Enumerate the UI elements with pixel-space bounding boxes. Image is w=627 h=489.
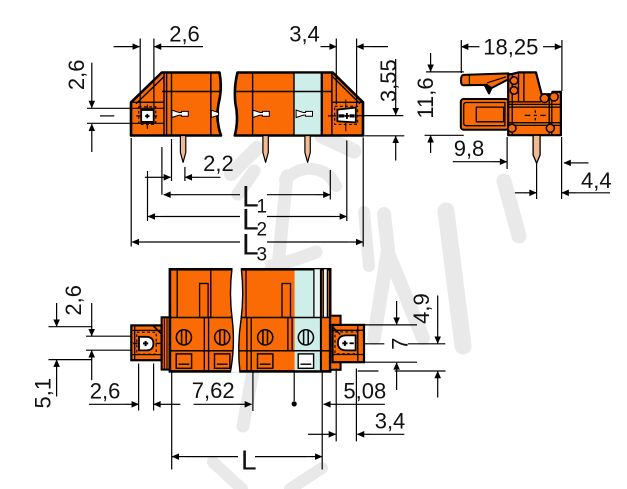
svg-text:2,6: 2,6 xyxy=(90,378,121,403)
svg-text:2,6: 2,6 xyxy=(169,21,200,46)
svg-text:3,4: 3,4 xyxy=(375,408,406,433)
svg-text:2,2: 2,2 xyxy=(203,151,234,176)
svg-text:2,6: 2,6 xyxy=(61,285,86,316)
svg-text:3,4: 3,4 xyxy=(289,21,320,46)
svg-text:3: 3 xyxy=(257,245,268,266)
svg-text:5,08: 5,08 xyxy=(343,378,386,403)
svg-text:11,6: 11,6 xyxy=(413,77,438,118)
svg-text:18,25: 18,25 xyxy=(483,35,538,60)
svg-text:5,1: 5,1 xyxy=(31,378,56,409)
svg-text:4,9: 4,9 xyxy=(409,293,434,324)
svg-text:3,55: 3,55 xyxy=(376,59,401,102)
svg-text:L: L xyxy=(241,444,257,475)
svg-text:7,62: 7,62 xyxy=(192,378,235,403)
svg-text:4,4: 4,4 xyxy=(581,168,612,193)
svg-text:9,8: 9,8 xyxy=(454,136,485,161)
svg-text:2,6: 2,6 xyxy=(64,60,89,91)
svg-text:7: 7 xyxy=(387,338,412,350)
